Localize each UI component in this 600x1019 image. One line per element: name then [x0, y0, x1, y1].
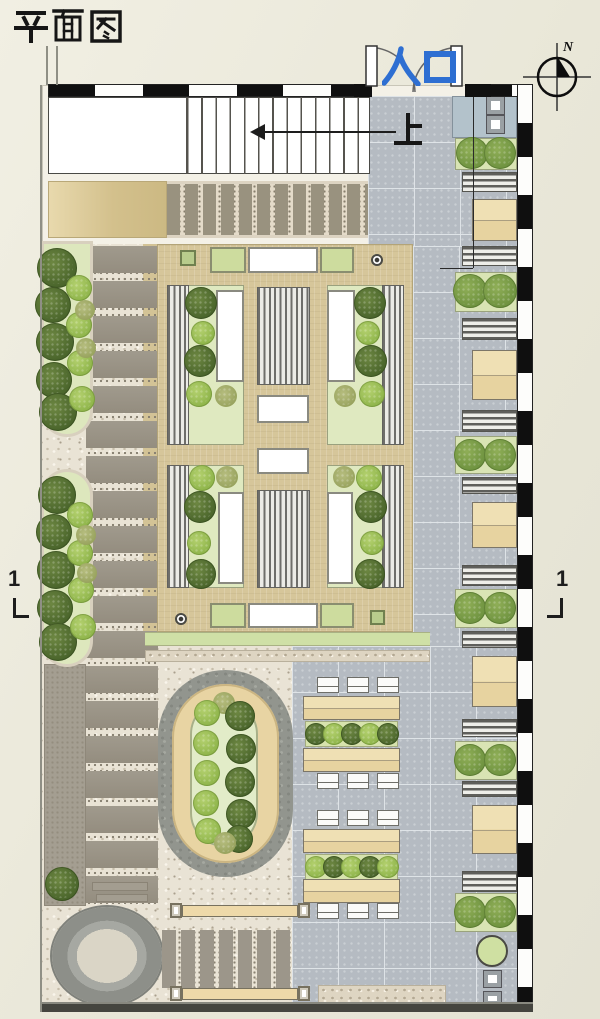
- table: [303, 696, 400, 720]
- cap: [298, 903, 310, 918]
- chair: [377, 677, 399, 693]
- w-rect: [257, 448, 309, 474]
- chair: [317, 810, 339, 826]
- chair: [317, 677, 339, 693]
- tree: [186, 381, 212, 407]
- cap: [298, 986, 310, 1001]
- slat-bench: [462, 631, 517, 648]
- slat-bench: [462, 477, 517, 494]
- tree: [355, 491, 387, 523]
- table: [472, 199, 517, 241]
- tree: [356, 321, 380, 345]
- tree: [187, 531, 211, 555]
- greenstrip: [145, 632, 430, 646]
- stair-treads: [186, 97, 370, 174]
- wood-deck-strip: [48, 181, 167, 238]
- ringpost: [371, 254, 383, 266]
- tree: [454, 439, 486, 471]
- chair: [347, 903, 369, 919]
- chair: [377, 773, 399, 789]
- tree: [214, 832, 236, 854]
- tree: [216, 466, 238, 488]
- bench: [327, 290, 355, 382]
- chair: [377, 810, 399, 826]
- slat-bench: [462, 246, 517, 266]
- chair: [347, 773, 369, 789]
- bench: [218, 492, 244, 584]
- slats-v: [257, 287, 310, 385]
- tree: [189, 465, 215, 491]
- section-cut-right: [547, 598, 563, 618]
- north-compass: [520, 40, 594, 114]
- lg-rect: [210, 247, 246, 273]
- tree: [76, 338, 96, 358]
- tree: [355, 559, 385, 589]
- section-marker-right: 1: [556, 568, 568, 590]
- entrance-glyphs: [382, 46, 458, 86]
- table: [303, 748, 400, 772]
- title-glyph-tu: [92, 12, 120, 41]
- refline: [473, 96, 474, 268]
- tree: [356, 465, 382, 491]
- refline: [440, 268, 473, 269]
- tree: [45, 867, 79, 901]
- bench: [248, 247, 318, 273]
- section-cut-left: [13, 598, 29, 618]
- tree: [484, 137, 516, 169]
- table: [303, 879, 400, 903]
- east-wall: [517, 84, 533, 1012]
- stone-slab-path: [86, 246, 158, 906]
- tree: [186, 559, 216, 589]
- gravelband: [318, 985, 446, 1003]
- sqframe: [487, 97, 504, 114]
- sqframe: [487, 116, 504, 133]
- west-boundary: [40, 85, 42, 1012]
- slat-bench: [462, 318, 517, 340]
- title-glyph-mian: [54, 11, 82, 40]
- slat-bench: [462, 410, 517, 432]
- tree: [225, 701, 255, 731]
- lg-rect: [320, 247, 354, 273]
- tree: [194, 700, 220, 726]
- tree: [193, 730, 219, 756]
- tree: [360, 531, 384, 555]
- tree: [226, 734, 256, 764]
- tree: [66, 275, 92, 301]
- site-plan: 平面图 入口: [0, 0, 600, 1019]
- chair: [377, 903, 399, 919]
- tree: [453, 274, 487, 308]
- tree: [355, 345, 387, 377]
- slat-bench: [462, 781, 517, 797]
- up-arrow-shaft: [264, 131, 396, 133]
- table: [472, 502, 517, 548]
- tree: [194, 760, 220, 786]
- slats-v: [382, 465, 404, 588]
- tree: [76, 525, 96, 545]
- slat-bench: [462, 565, 517, 586]
- lg-rect: [210, 603, 246, 628]
- bench: [182, 905, 298, 917]
- tree: [484, 896, 516, 928]
- compass-icon: [520, 40, 594, 114]
- lg-rect: [320, 603, 354, 628]
- chair: [317, 773, 339, 789]
- bench: [216, 290, 244, 382]
- table: [472, 805, 517, 854]
- sqframe: [484, 971, 501, 987]
- tree: [185, 287, 217, 319]
- w-rect: [257, 395, 309, 423]
- chair: [347, 810, 369, 826]
- bench: [248, 603, 318, 628]
- tree: [225, 767, 255, 797]
- tree: [37, 590, 73, 626]
- tree: [333, 466, 355, 488]
- tree: [67, 502, 93, 528]
- cap: [170, 986, 182, 1001]
- thinline: [56, 46, 58, 85]
- stepping-slabs: [162, 930, 292, 988]
- title-glyph-ping: [13, 7, 125, 43]
- north-label: N: [563, 40, 573, 56]
- slats-v: [257, 490, 310, 588]
- direction-arrow-icon: [250, 124, 265, 140]
- table: [472, 656, 517, 707]
- page-title: 平面图: [13, 7, 125, 43]
- tree: [454, 896, 486, 928]
- cap: [170, 903, 182, 918]
- round-table: [476, 935, 508, 967]
- round-plaza: [52, 907, 162, 1005]
- gravelband: [145, 650, 430, 662]
- slabpiece: [96, 894, 148, 902]
- slat-bench: [462, 871, 517, 892]
- slabpiece: [92, 882, 148, 891]
- chair: [347, 677, 369, 693]
- chair: [317, 903, 339, 919]
- ringpost: [175, 613, 187, 625]
- tree: [377, 856, 399, 878]
- tree: [184, 345, 216, 377]
- slat-bench: [462, 172, 517, 192]
- gsq: [370, 610, 385, 625]
- bench: [182, 988, 298, 1000]
- tree: [77, 563, 97, 583]
- tree: [454, 592, 486, 624]
- bluerect: [452, 96, 517, 138]
- stone-strip: [167, 181, 368, 238]
- bench: [327, 492, 353, 584]
- tree: [484, 592, 516, 624]
- stairs-up-label: 上: [393, 112, 423, 148]
- tree: [70, 614, 96, 640]
- north-wall: [48, 84, 372, 97]
- slat-bench: [462, 719, 517, 737]
- tree: [191, 321, 215, 345]
- tree: [377, 723, 399, 745]
- tree: [184, 491, 216, 523]
- tree: [354, 287, 386, 319]
- tree: [484, 744, 516, 776]
- tree: [215, 385, 237, 407]
- tree: [359, 381, 385, 407]
- section-marker-left: 1: [8, 568, 20, 590]
- tree: [69, 386, 95, 412]
- thinline: [46, 46, 48, 85]
- table: [303, 829, 400, 853]
- tree: [75, 300, 95, 320]
- tree: [334, 385, 356, 407]
- tree: [454, 744, 486, 776]
- table: [472, 350, 517, 400]
- south-wall: [42, 1002, 533, 1012]
- gsq: [180, 250, 196, 266]
- tree: [484, 439, 516, 471]
- tree: [483, 274, 517, 308]
- up-glyph: [393, 112, 423, 148]
- tree: [193, 790, 219, 816]
- entrance-label: 入口: [382, 46, 458, 86]
